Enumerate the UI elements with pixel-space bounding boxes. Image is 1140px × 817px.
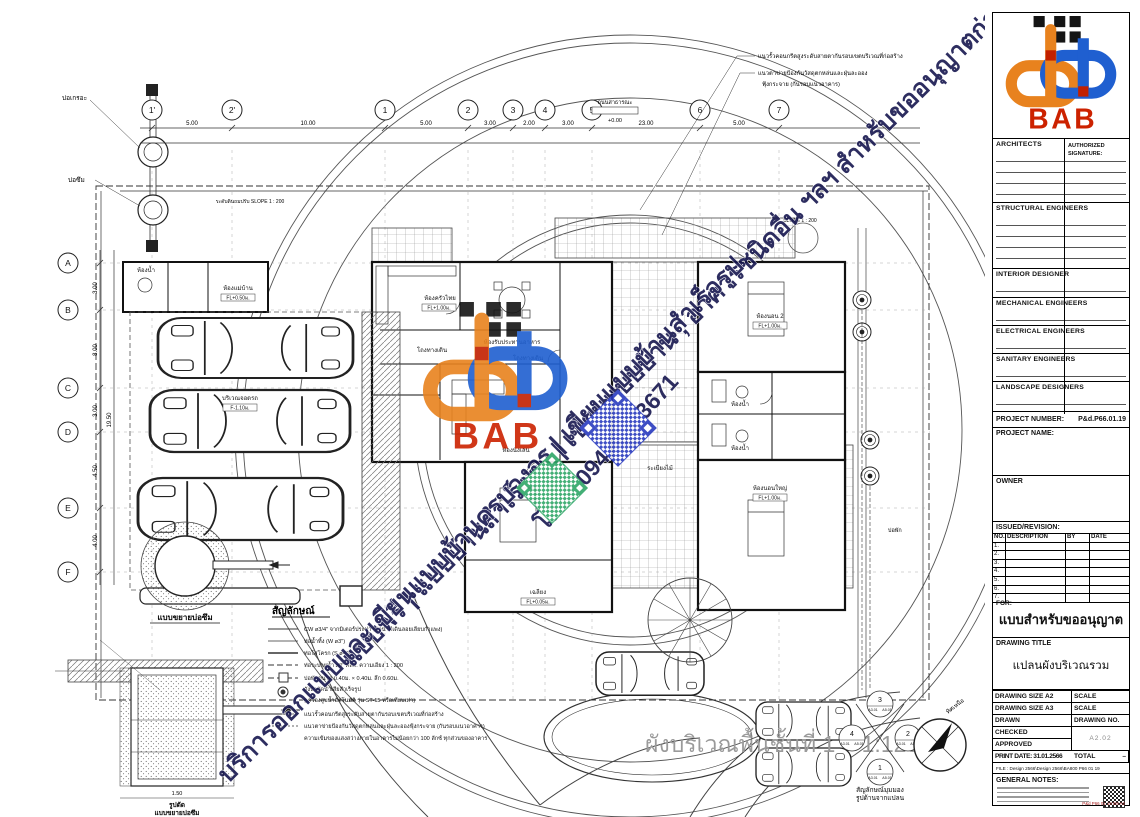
svg-text:แบบขยายบ่อซึม: แบบขยายบ่อซึม [157, 613, 212, 622]
section-label: INTERIOR DESIGNER [996, 271, 1069, 278]
svg-text:3: 3 [878, 697, 882, 704]
svg-text:ห้องนอน 2: ห้องนอน 2 [756, 313, 784, 320]
revision-cell [1006, 586, 1066, 595]
total-value: – [1122, 753, 1126, 760]
septic-tank-label: บ่อเกรอะ [62, 95, 87, 102]
section-label: MECHANICAL ENGINEERS [996, 300, 1088, 307]
svg-text:ถนนสาธารณะ: ถนนสาธารณะ [598, 99, 633, 106]
svg-text:รูปตัด: รูปตัด [169, 801, 185, 810]
svg-text:+0.00: +0.00 [608, 118, 622, 124]
revision-cell [1066, 551, 1090, 560]
svg-text:FL+1.00ม.: FL+1.00ม. [427, 306, 450, 312]
svg-text:8.00: 8.00 [93, 344, 99, 356]
signature-rules [996, 151, 1126, 200]
revision-cell [1090, 543, 1129, 552]
svg-text:FL+0.05ม.: FL+0.05ม. [526, 600, 549, 606]
svg-text:ทิศเหนือ: ทิศเหนือ [944, 696, 965, 715]
svg-text:1.50: 1.50 [172, 791, 183, 797]
revision-cell [1006, 577, 1066, 586]
scale-label: SCALE [1072, 703, 1129, 715]
svg-text:7: 7 [777, 105, 782, 115]
svg-text:3.00: 3.00 [562, 121, 574, 127]
revision-cell [1006, 551, 1066, 560]
svg-text:E: E [65, 503, 71, 513]
info-table: DRAWING SIZE A2 SCALE DRAWING SIZE A3 SC… [993, 690, 1129, 763]
project-number-label: PROJECT NUMBER: [996, 416, 1064, 423]
svg-text:ความเข้มของแสงสว่างภายในอาคารไ: ความเข้มของแสงสว่างภายในอาคารไม่น้อยกว่า… [304, 734, 487, 742]
section-structural: STRUCTURAL ENGINEERS [993, 203, 1129, 269]
svg-text:F-1.10ม.: F-1.10ม. [230, 406, 249, 412]
total-label: TOTAL [1074, 753, 1095, 760]
svg-text:ห้องนอนใหญ่: ห้องนอนใหญ่ [753, 484, 787, 492]
drawing-title-label: DRAWING TITLE [996, 640, 1126, 647]
revision-row-no: 1. [993, 543, 1006, 552]
sheet-number: A2.02 [1072, 727, 1129, 751]
plan-caption: ผังบริเวณพื้นชั้นที่ 11:125 [645, 728, 919, 757]
drawn-label: DRAWN [993, 715, 1072, 727]
svg-text:4: 4 [543, 105, 548, 115]
size-a2-label: DRAWING SIZE A2 [993, 691, 1072, 703]
seepage-pit-label: บ่อซึม [68, 176, 85, 184]
for-row: FOR: แบบสำหรับขออนุญาต [993, 598, 1129, 638]
svg-text:สัญลักษณ์: สัญลักษณ์ [272, 605, 315, 617]
svg-text:B: B [65, 305, 71, 315]
revision-cell [1006, 543, 1066, 552]
svg-text:แนวรั้วคอนกรีตสูงระดับสายตากัน: แนวรั้วคอนกรีตสูงระดับสายตากันรอบเขตบริเ… [304, 710, 444, 718]
svg-text:FL+1.00ม.: FL+1.00ม. [758, 324, 781, 330]
svg-text:19.50: 19.50 [107, 412, 113, 428]
revision-cell [1090, 577, 1129, 586]
svg-text:A3.01: A3.01 [840, 742, 849, 746]
revision-row-no: 5. [993, 577, 1006, 586]
svg-text:1: 1 [878, 765, 882, 772]
section-mechanical: MECHANICAL ENGINEERS [993, 298, 1129, 326]
svg-text:2: 2 [466, 105, 471, 115]
revision-col-description: DESCRIPTION [1006, 534, 1066, 543]
drawing-title-row: DRAWING TITLE แปลนผังบริเวณรวม [993, 638, 1129, 690]
manhole-label: บ่อพัก [888, 527, 902, 534]
svg-text:10.00: 10.00 [300, 121, 316, 127]
svg-text:4.00: 4.00 [93, 535, 99, 547]
revision-row-no: 6. [993, 586, 1006, 595]
svg-text:A5.01: A5.01 [882, 776, 891, 780]
svg-text:2.00: 2.00 [523, 121, 535, 127]
site-plan-drawing: BAB [0, 0, 985, 817]
svg-text:แนวตาข่ายป้องกันวัสดุตกหล่นและ: แนวตาข่ายป้องกันวัสดุตกหล่นและฝุ่นละออง [758, 69, 868, 77]
section-electrical: ELECTRICAL ENGINEERS [993, 326, 1129, 354]
approved-label: APPROVED [993, 739, 1072, 751]
svg-text:23.00: 23.00 [638, 121, 654, 127]
print-date: PRINT DATE: 31.01.2566 [993, 751, 1072, 763]
scale-label: SCALE [1072, 691, 1129, 703]
signature-rules [996, 394, 1126, 409]
drawing-title-value: แปลนผังบริเวณรวม [996, 657, 1126, 675]
svg-text:เฉลียง: เฉลียง [530, 588, 546, 596]
revision-cell [1066, 560, 1090, 569]
signature-rules [996, 338, 1126, 351]
svg-text:สัญลักษณ์มุมมอง: สัญลักษณ์มุมมอง [856, 786, 904, 794]
section-label: STRUCTURAL ENGINEERS [996, 205, 1088, 212]
file-path: FILE : Design 2566\Design 2566\BA800 P66… [993, 764, 1129, 774]
grid-bubbles-left: AB CD EF 3.00 8.00 3.00 4.50 4.00 19.50 [58, 250, 114, 585]
svg-text:D: D [65, 427, 71, 437]
svg-text:A: A [65, 258, 71, 268]
svg-text:3: 3 [511, 105, 516, 115]
svg-text:แบบขยายบ่อซึม: แบบขยายบ่อซึม [155, 809, 200, 817]
svg-text:A3.01: A3.01 [868, 708, 877, 712]
svg-text:2': 2' [229, 105, 236, 115]
revision-table: ISSUED/REVISION: NO. DESCRIPTION BY DATE… [993, 522, 1129, 598]
project-number-value: P&d.P66.01.19 [1078, 416, 1126, 423]
svg-text:โถงทางเดิน: โถงทางเดิน [417, 346, 447, 354]
tree [648, 578, 732, 662]
general-notes-label: GENERAL NOTES: [996, 777, 1059, 784]
revision-row-no: 3. [993, 560, 1006, 569]
title-block: ARCHITECTS STRUCTURAL ENGINEERS INTERIOR… [992, 12, 1130, 806]
revision-row-no: 2. [993, 551, 1006, 560]
section-label: ARCHITECTS [996, 141, 1042, 148]
total-cell: TOTAL – [1072, 751, 1129, 763]
svg-text:ห้องแม่บ้าน: ห้องแม่บ้าน [223, 285, 253, 292]
svg-text:4: 4 [850, 731, 854, 738]
svg-text:5.00: 5.00 [420, 121, 432, 127]
revision-cell [1066, 577, 1090, 586]
for-value: แบบสำหรับขออนุญาต [996, 609, 1126, 630]
drawing-no-label: DRAWING NO. [1072, 715, 1129, 727]
svg-text:2: 2 [906, 731, 910, 738]
revision-col-by: BY [1066, 534, 1090, 543]
size-a3-label: DRAWING SIZE A3 [993, 703, 1072, 715]
authorized-divider [1064, 139, 1065, 414]
notes-text-bars [997, 787, 1089, 805]
revision-cell [1066, 568, 1090, 577]
svg-text:บริเวณจอดรถ: บริเวณจอดรถ [222, 395, 258, 402]
section-interior: INTERIOR DESIGNER [993, 269, 1129, 298]
section-sanitary: SANITARY ENGINEERS [993, 354, 1129, 382]
project-name-row: PROJECT NAME: [993, 428, 1129, 476]
section-label: LANDSCAPE DESIGNERS [996, 384, 1084, 391]
svg-text:3.00: 3.00 [93, 405, 99, 417]
revision-cell [1090, 586, 1129, 595]
svg-text:C: C [65, 383, 71, 393]
signature-rules [996, 281, 1126, 295]
svg-text:แนวรั้วคอนกรีตสูงระดับสายตากัน: แนวรั้วคอนกรีตสูงระดับสายตากันรอบเขตบริเ… [758, 51, 903, 60]
revision-title: ISSUED/REVISION: [993, 522, 1129, 533]
svg-text:1': 1' [149, 105, 156, 115]
grid-bubbles-top: 1'2' 12 34 56 7 5.0010.00 5.003.00 2.003… [140, 100, 920, 143]
svg-text:ห้องรับประทานอาหาร: ห้องรับประทานอาหาร [484, 339, 541, 346]
svg-text:FL+0.50ม.: FL+0.50ม. [226, 296, 249, 302]
checked-label: CHECKED [993, 727, 1072, 739]
authorized-line1: AUTHORIZED [1068, 142, 1105, 150]
signature-rules [996, 215, 1126, 266]
svg-text:A5.01: A5.01 [882, 708, 891, 712]
project-name-label: PROJECT NAME: [996, 430, 1054, 437]
company-logo-box [993, 13, 1129, 139]
section-landscape: LANDSCAPE DESIGNERS [993, 382, 1129, 412]
svg-text:A3.01: A3.01 [896, 742, 905, 746]
revision-col-date: DATE [1090, 534, 1129, 543]
section-architects: ARCHITECTS [993, 139, 1129, 203]
svg-text:ห้องครัวไทย: ห้องครัวไทย [424, 294, 456, 302]
revision-col-no: NO. [993, 534, 1006, 543]
consultant-sections: ARCHITECTS STRUCTURAL ENGINEERS INTERIOR… [993, 139, 1129, 412]
svg-text:3.00: 3.00 [93, 282, 99, 294]
authorized-signature-label: AUTHORIZED SIGNATURE: [1068, 142, 1105, 159]
svg-text:A5.01: A5.01 [854, 742, 863, 746]
sheet-footer-code: P&d P66 01 19 D8 A2 [1082, 801, 1125, 806]
svg-text:5.00: 5.00 [186, 121, 198, 127]
owner-label: OWNER [996, 478, 1023, 485]
svg-text:1: 1 [383, 105, 388, 115]
svg-text:3.00: 3.00 [484, 121, 496, 127]
revision-row-no: 4. [993, 568, 1006, 577]
revision-cell [1090, 560, 1129, 569]
svg-text:4.50: 4.50 [93, 465, 99, 477]
revision-cell [1006, 560, 1066, 569]
section-label: ELECTRICAL ENGINEERS [996, 328, 1085, 335]
svg-text:F: F [65, 567, 70, 577]
signature-rules [996, 310, 1126, 323]
revision-cell [1090, 568, 1129, 577]
svg-text:แนวตาข่ายป้องกันวัสดุตกหล่นและ: แนวตาข่ายป้องกันวัสดุตกหล่นและฝุ่นละอองฟ… [304, 723, 485, 730]
drawing-sheet: BAB [0, 0, 1140, 817]
authorized-line2: SIGNATURE: [1068, 150, 1105, 158]
revision-cell [1066, 543, 1090, 552]
revision-cell [1090, 551, 1129, 560]
svg-text:ระเบียงไม้: ระเบียงไม้ [647, 464, 673, 472]
svg-text:รูปด้านจากแปลน: รูปด้านจากแปลน [856, 794, 905, 802]
cars-bottom [596, 652, 851, 786]
svg-text:A3.01: A3.01 [868, 776, 877, 780]
project-number-row: PROJECT NUMBER: P&d.P66.01.19 [993, 414, 1129, 428]
svg-text:FL+1.00ม.: FL+1.00ม. [758, 496, 781, 502]
svg-text:6: 6 [698, 105, 703, 115]
svg-text:5.00: 5.00 [733, 121, 745, 127]
revision-cell [1066, 586, 1090, 595]
owner-row: OWNER [993, 476, 1129, 522]
signature-rules [996, 366, 1126, 379]
company-logo [1005, 16, 1117, 136]
svg-text:ระดับดินถมปรับ SLOPE 1 : 200: ระดับดินถมปรับ SLOPE 1 : 200 [216, 198, 285, 205]
for-label: FOR: [996, 600, 1126, 607]
svg-text:ฟุ้งกระจาย (กันรอบแนวอาคาร): ฟุ้งกระจาย (กันรอบแนวอาคาร) [762, 80, 840, 88]
revision-cell [1006, 568, 1066, 577]
compass: ทิศเหนือ [914, 696, 966, 771]
